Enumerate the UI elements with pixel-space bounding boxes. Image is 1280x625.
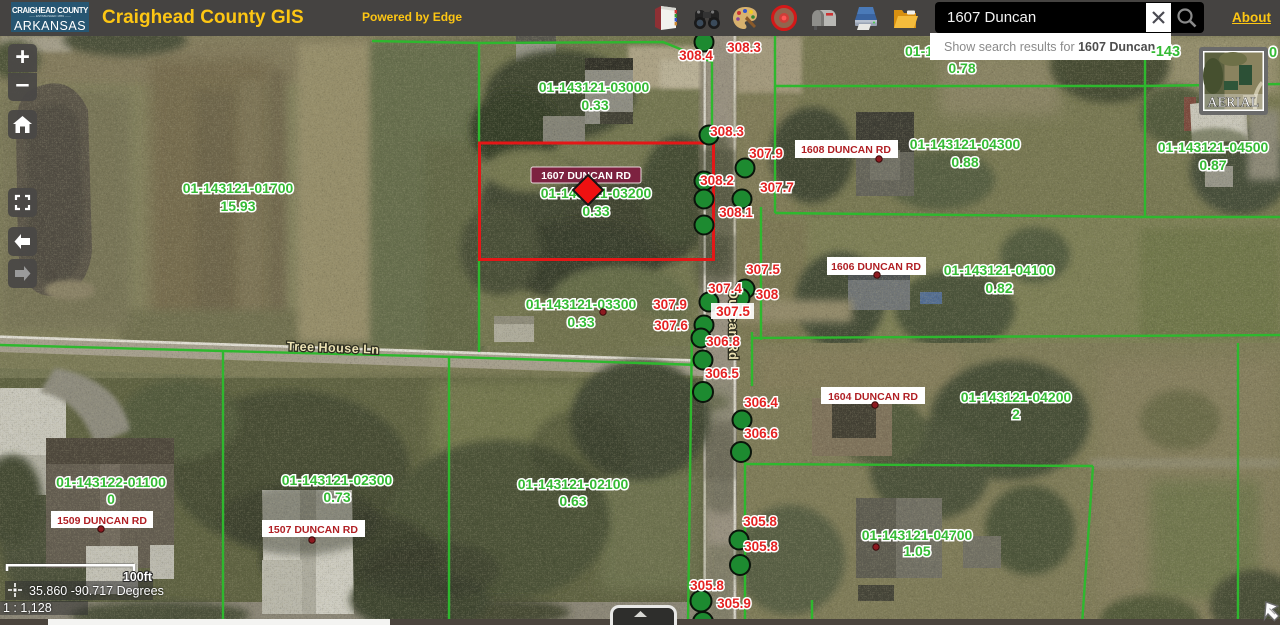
svg-text:307.7: 307.7 xyxy=(760,180,794,195)
svg-text:308.4: 308.4 xyxy=(679,48,713,63)
svg-text:01-143121-03300: 01-143121-03300 xyxy=(526,296,637,312)
svg-text:307.5: 307.5 xyxy=(716,304,750,319)
svg-text:AERIAL: AERIAL xyxy=(1208,95,1260,110)
svg-text:0.82: 0.82 xyxy=(985,280,1012,296)
svg-text:308.1: 308.1 xyxy=(719,205,753,220)
svg-text:01-143121-04100: 01-143121-04100 xyxy=(944,262,1055,278)
svg-text:01-143121-04500: 01-143121-04500 xyxy=(1158,139,1269,155)
svg-text:15.93: 15.93 xyxy=(220,198,255,214)
svg-text:0: 0 xyxy=(1269,45,1277,61)
svg-text:307.9: 307.9 xyxy=(749,146,783,161)
svg-text:01-143121-02100: 01-143121-02100 xyxy=(518,476,629,492)
svg-text:0.63: 0.63 xyxy=(559,493,586,509)
svg-text:01-1: 01-1 xyxy=(905,43,933,59)
svg-text:306.8: 306.8 xyxy=(706,334,740,349)
svg-text:01-143121-03000: 01-143121-03000 xyxy=(539,79,650,95)
svg-text:305.8: 305.8 xyxy=(743,514,777,529)
svg-text:307.6: 307.6 xyxy=(654,318,688,333)
svg-text:1.05: 1.05 xyxy=(903,543,930,559)
svg-text:307.5: 307.5 xyxy=(746,262,780,277)
svg-text:1509 DUNCAN RD: 1509 DUNCAN RD xyxy=(57,515,147,527)
svg-text:1604 DUNCAN RD: 1604 DUNCAN RD xyxy=(828,391,918,403)
svg-text:307.9: 307.9 xyxy=(653,297,687,312)
svg-text:305.8: 305.8 xyxy=(744,539,778,554)
svg-text:01-143121-04200: 01-143121-04200 xyxy=(961,389,1072,405)
svg-text:308.2: 308.2 xyxy=(700,173,734,188)
svg-text:01-143121-02300: 01-143121-02300 xyxy=(282,472,393,488)
svg-text:306.6: 306.6 xyxy=(744,426,778,441)
svg-text:0.33: 0.33 xyxy=(567,314,594,330)
svg-text:01-143121-04300: 01-143121-04300 xyxy=(910,136,1021,152)
svg-text:306.4: 306.4 xyxy=(744,395,778,410)
svg-text:01-143122-01100: 01-143122-01100 xyxy=(56,474,166,490)
svg-text:1507 DUNCAN RD: 1507 DUNCAN RD xyxy=(268,524,358,536)
svg-text:1608 DUNCAN RD: 1608 DUNCAN RD xyxy=(801,144,891,156)
svg-text:308: 308 xyxy=(756,287,779,302)
svg-text:0.73: 0.73 xyxy=(323,489,350,505)
svg-text:0.33: 0.33 xyxy=(582,203,609,219)
svg-text:0.88: 0.88 xyxy=(951,154,978,170)
svg-text:1606 DUNCAN RD: 1606 DUNCAN RD xyxy=(831,261,921,273)
svg-text:307.4: 307.4 xyxy=(708,281,742,296)
svg-text:2: 2 xyxy=(1012,406,1020,422)
svg-text:0.78: 0.78 xyxy=(948,60,975,76)
svg-text:Duncan Rd: Duncan Rd xyxy=(726,290,740,360)
svg-text:-143: -143 xyxy=(1151,44,1180,60)
svg-text:305.8: 305.8 xyxy=(690,578,724,593)
svg-text:306.5: 306.5 xyxy=(705,366,739,381)
svg-text:01-143121-01700: 01-143121-01700 xyxy=(183,180,294,196)
svg-text:308.3: 308.3 xyxy=(727,40,761,55)
svg-text:0.33: 0.33 xyxy=(581,97,608,113)
svg-text:01-143121-04700: 01-143121-04700 xyxy=(862,527,973,543)
svg-text:0.87: 0.87 xyxy=(1199,157,1226,173)
svg-text:0: 0 xyxy=(107,491,115,507)
svg-text:308.3: 308.3 xyxy=(710,124,744,139)
svg-text:305.9: 305.9 xyxy=(717,596,751,611)
